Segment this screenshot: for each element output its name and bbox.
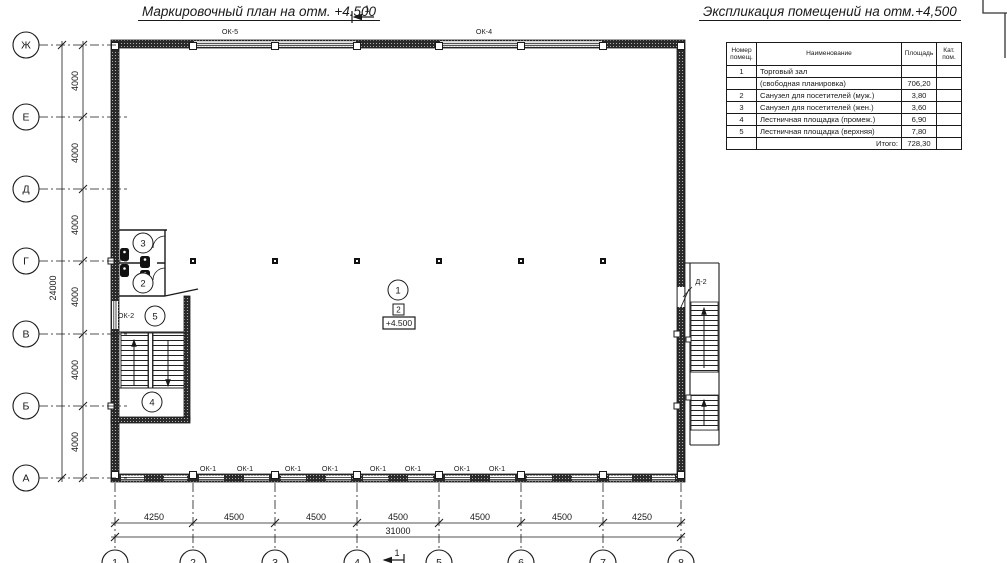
dim-label: 4500 bbox=[388, 512, 408, 522]
table-cell bbox=[727, 78, 757, 90]
table-cell bbox=[937, 78, 962, 90]
table-cell: 7,80 bbox=[902, 126, 937, 138]
drawing-sheet: Ж Е Д Г В Б А 1 2 3 4 5 6 7 8 bbox=[0, 0, 1007, 563]
table-row: 3 Санузел для посетителей (жен.) 3,60 bbox=[727, 102, 962, 114]
bottom-window-strips bbox=[121, 475, 675, 480]
table-row: 5 Лестничная площадка (верхняя) 7,80 bbox=[727, 126, 962, 138]
dim-total-label: 31000 bbox=[385, 526, 410, 536]
axis-col-label: 2 bbox=[190, 557, 196, 563]
table-row: 4 Лестничная площадка (промеж.) 6,90 bbox=[727, 114, 962, 126]
dim-label: 4000 bbox=[70, 215, 80, 235]
table-cell: 4 bbox=[727, 114, 757, 126]
dim-label: 4500 bbox=[470, 512, 490, 522]
dim-label: 4000 bbox=[70, 71, 80, 91]
table-header-cell: Наименование bbox=[757, 43, 902, 66]
building-walls bbox=[111, 40, 685, 482]
room-number: 4 bbox=[149, 398, 154, 409]
table-cell bbox=[727, 138, 757, 150]
table-cell: Торговый зал bbox=[757, 66, 902, 78]
table-cell: 5 bbox=[727, 126, 757, 138]
dim-label: 4250 bbox=[144, 512, 164, 522]
table-header-cell: Номер помещ. bbox=[727, 43, 757, 66]
axis-row-label: В bbox=[22, 329, 29, 341]
table-cell: 3 bbox=[727, 102, 757, 114]
dim-label: 4000 bbox=[70, 143, 80, 163]
plan-title: Маркировочный план на отм. +4.500 bbox=[138, 4, 380, 21]
table-cell bbox=[937, 138, 962, 150]
table-cell bbox=[937, 102, 962, 114]
table-cell: 706,20 bbox=[902, 78, 937, 90]
window-label-ok1: ОК-1 bbox=[370, 464, 386, 473]
table-total-row: Итого: 728,30 bbox=[727, 138, 962, 150]
table-cell: 6,90 bbox=[902, 114, 937, 126]
section-mark-number: 1 bbox=[394, 548, 399, 558]
table-cell: Лестничная площадка (промеж.) bbox=[757, 114, 902, 126]
dim-total-label: 24000 bbox=[48, 275, 58, 300]
door-label-d2: Д-2 bbox=[695, 277, 706, 286]
table-cell: (свободная планировка) bbox=[757, 78, 902, 90]
dim-label: 4500 bbox=[306, 512, 326, 522]
explication-table: Номер помещ. Наименование Площадь Кат. п… bbox=[726, 42, 962, 150]
room-number: 2 bbox=[140, 279, 145, 290]
axis-col-label: 4 bbox=[354, 557, 360, 563]
table-cell bbox=[902, 66, 937, 78]
window-label-ok4: ОК-4 bbox=[476, 27, 492, 36]
sheet-frame-corner bbox=[983, 0, 1007, 58]
room-number: 3 bbox=[140, 239, 145, 250]
table-header-cell: Кат. пом. bbox=[937, 43, 962, 66]
window-label-ok1: ОК-1 bbox=[489, 464, 505, 473]
axis-row-label: Ж bbox=[21, 40, 31, 52]
dim-label: 4000 bbox=[70, 432, 80, 452]
axis-col-label: 8 bbox=[678, 557, 684, 563]
axis-col-label: 3 bbox=[272, 557, 278, 563]
room-number: 1 bbox=[395, 286, 400, 297]
window-label-ok1: ОК-1 bbox=[237, 464, 253, 473]
window-label-ok1: ОК-1 bbox=[285, 464, 301, 473]
axis-row-label: А bbox=[22, 473, 29, 485]
dim-label: 4250 bbox=[632, 512, 652, 522]
table-cell: Лестничная площадка (верхняя) bbox=[757, 126, 902, 138]
window-label-ok5: ОК-5 bbox=[222, 27, 238, 36]
table-cell: 1 bbox=[727, 66, 757, 78]
window-label-ok1: ОК-1 bbox=[322, 464, 338, 473]
table-cell bbox=[937, 90, 962, 102]
table-cell: Санузел для посетителей (жен.) bbox=[757, 102, 902, 114]
axis-col-label: 1 bbox=[112, 557, 118, 563]
dim-label: 4500 bbox=[224, 512, 244, 522]
table-row: (свободная планировка) 706,20 bbox=[727, 78, 962, 90]
dimensions-left: 4000 4000 4000 4000 4000 4000 24000 bbox=[48, 41, 87, 482]
window-label-ok2: ОК-2 bbox=[118, 311, 134, 320]
axis-col-label: 5 bbox=[436, 557, 442, 563]
axis-col-label: 6 bbox=[518, 557, 524, 563]
table-cell bbox=[937, 114, 962, 126]
table-cell: Санузел для посетителей (муж.) bbox=[757, 90, 902, 102]
stair-flights bbox=[119, 332, 184, 388]
window-label-ok1: ОК-1 bbox=[405, 464, 421, 473]
table-row: 1 Торговый зал bbox=[727, 66, 962, 78]
explication-title: Экспликация помещений на отм.+4,500 bbox=[699, 4, 961, 21]
floor-marker-number: 2 bbox=[396, 306, 401, 315]
window-label-ok1: ОК-1 bbox=[454, 464, 470, 473]
interior-columns bbox=[190, 258, 606, 264]
axis-row-label: Е bbox=[22, 112, 29, 124]
wc-door-arc bbox=[153, 268, 165, 280]
table-cell: 728,30 bbox=[902, 138, 937, 150]
table-row: 2 Санузел для посетителей (муж.) 3,80 bbox=[727, 90, 962, 102]
level-marker: 2 +4.500 bbox=[383, 304, 415, 329]
axis-row-label: Д bbox=[22, 184, 29, 196]
axis-row-label: Б bbox=[23, 401, 30, 413]
wc-door-arc bbox=[153, 236, 165, 248]
axis-col-label: 7 bbox=[600, 557, 606, 563]
table-cell: 3,60 bbox=[902, 102, 937, 114]
axis-row-label: Г bbox=[23, 256, 29, 268]
table-cell bbox=[937, 126, 962, 138]
table-header-cell: Площадь bbox=[902, 43, 937, 66]
dimensions-bottom: 4250 4500 4500 4500 4500 4500 4250 31000 bbox=[111, 512, 685, 541]
table-header-row: Номер помещ. Наименование Площадь Кат. п… bbox=[727, 43, 962, 66]
dim-label: 4500 bbox=[552, 512, 572, 522]
table-cell: Итого: bbox=[757, 138, 902, 150]
dim-label: 4000 bbox=[70, 287, 80, 307]
room-number: 5 bbox=[152, 312, 157, 323]
dim-label: 4000 bbox=[70, 360, 80, 380]
window-label-ok1: ОК-1 bbox=[200, 464, 216, 473]
table-cell: 2 bbox=[727, 90, 757, 102]
level-value: +4.500 bbox=[386, 318, 413, 328]
table-cell bbox=[937, 66, 962, 78]
window-labels: ОК-5 ОК-4 ОК-2 Д-2 ОК-1 ОК-1 ОК-1 ОК-1 О… bbox=[118, 27, 707, 473]
table-cell: 3,80 bbox=[902, 90, 937, 102]
